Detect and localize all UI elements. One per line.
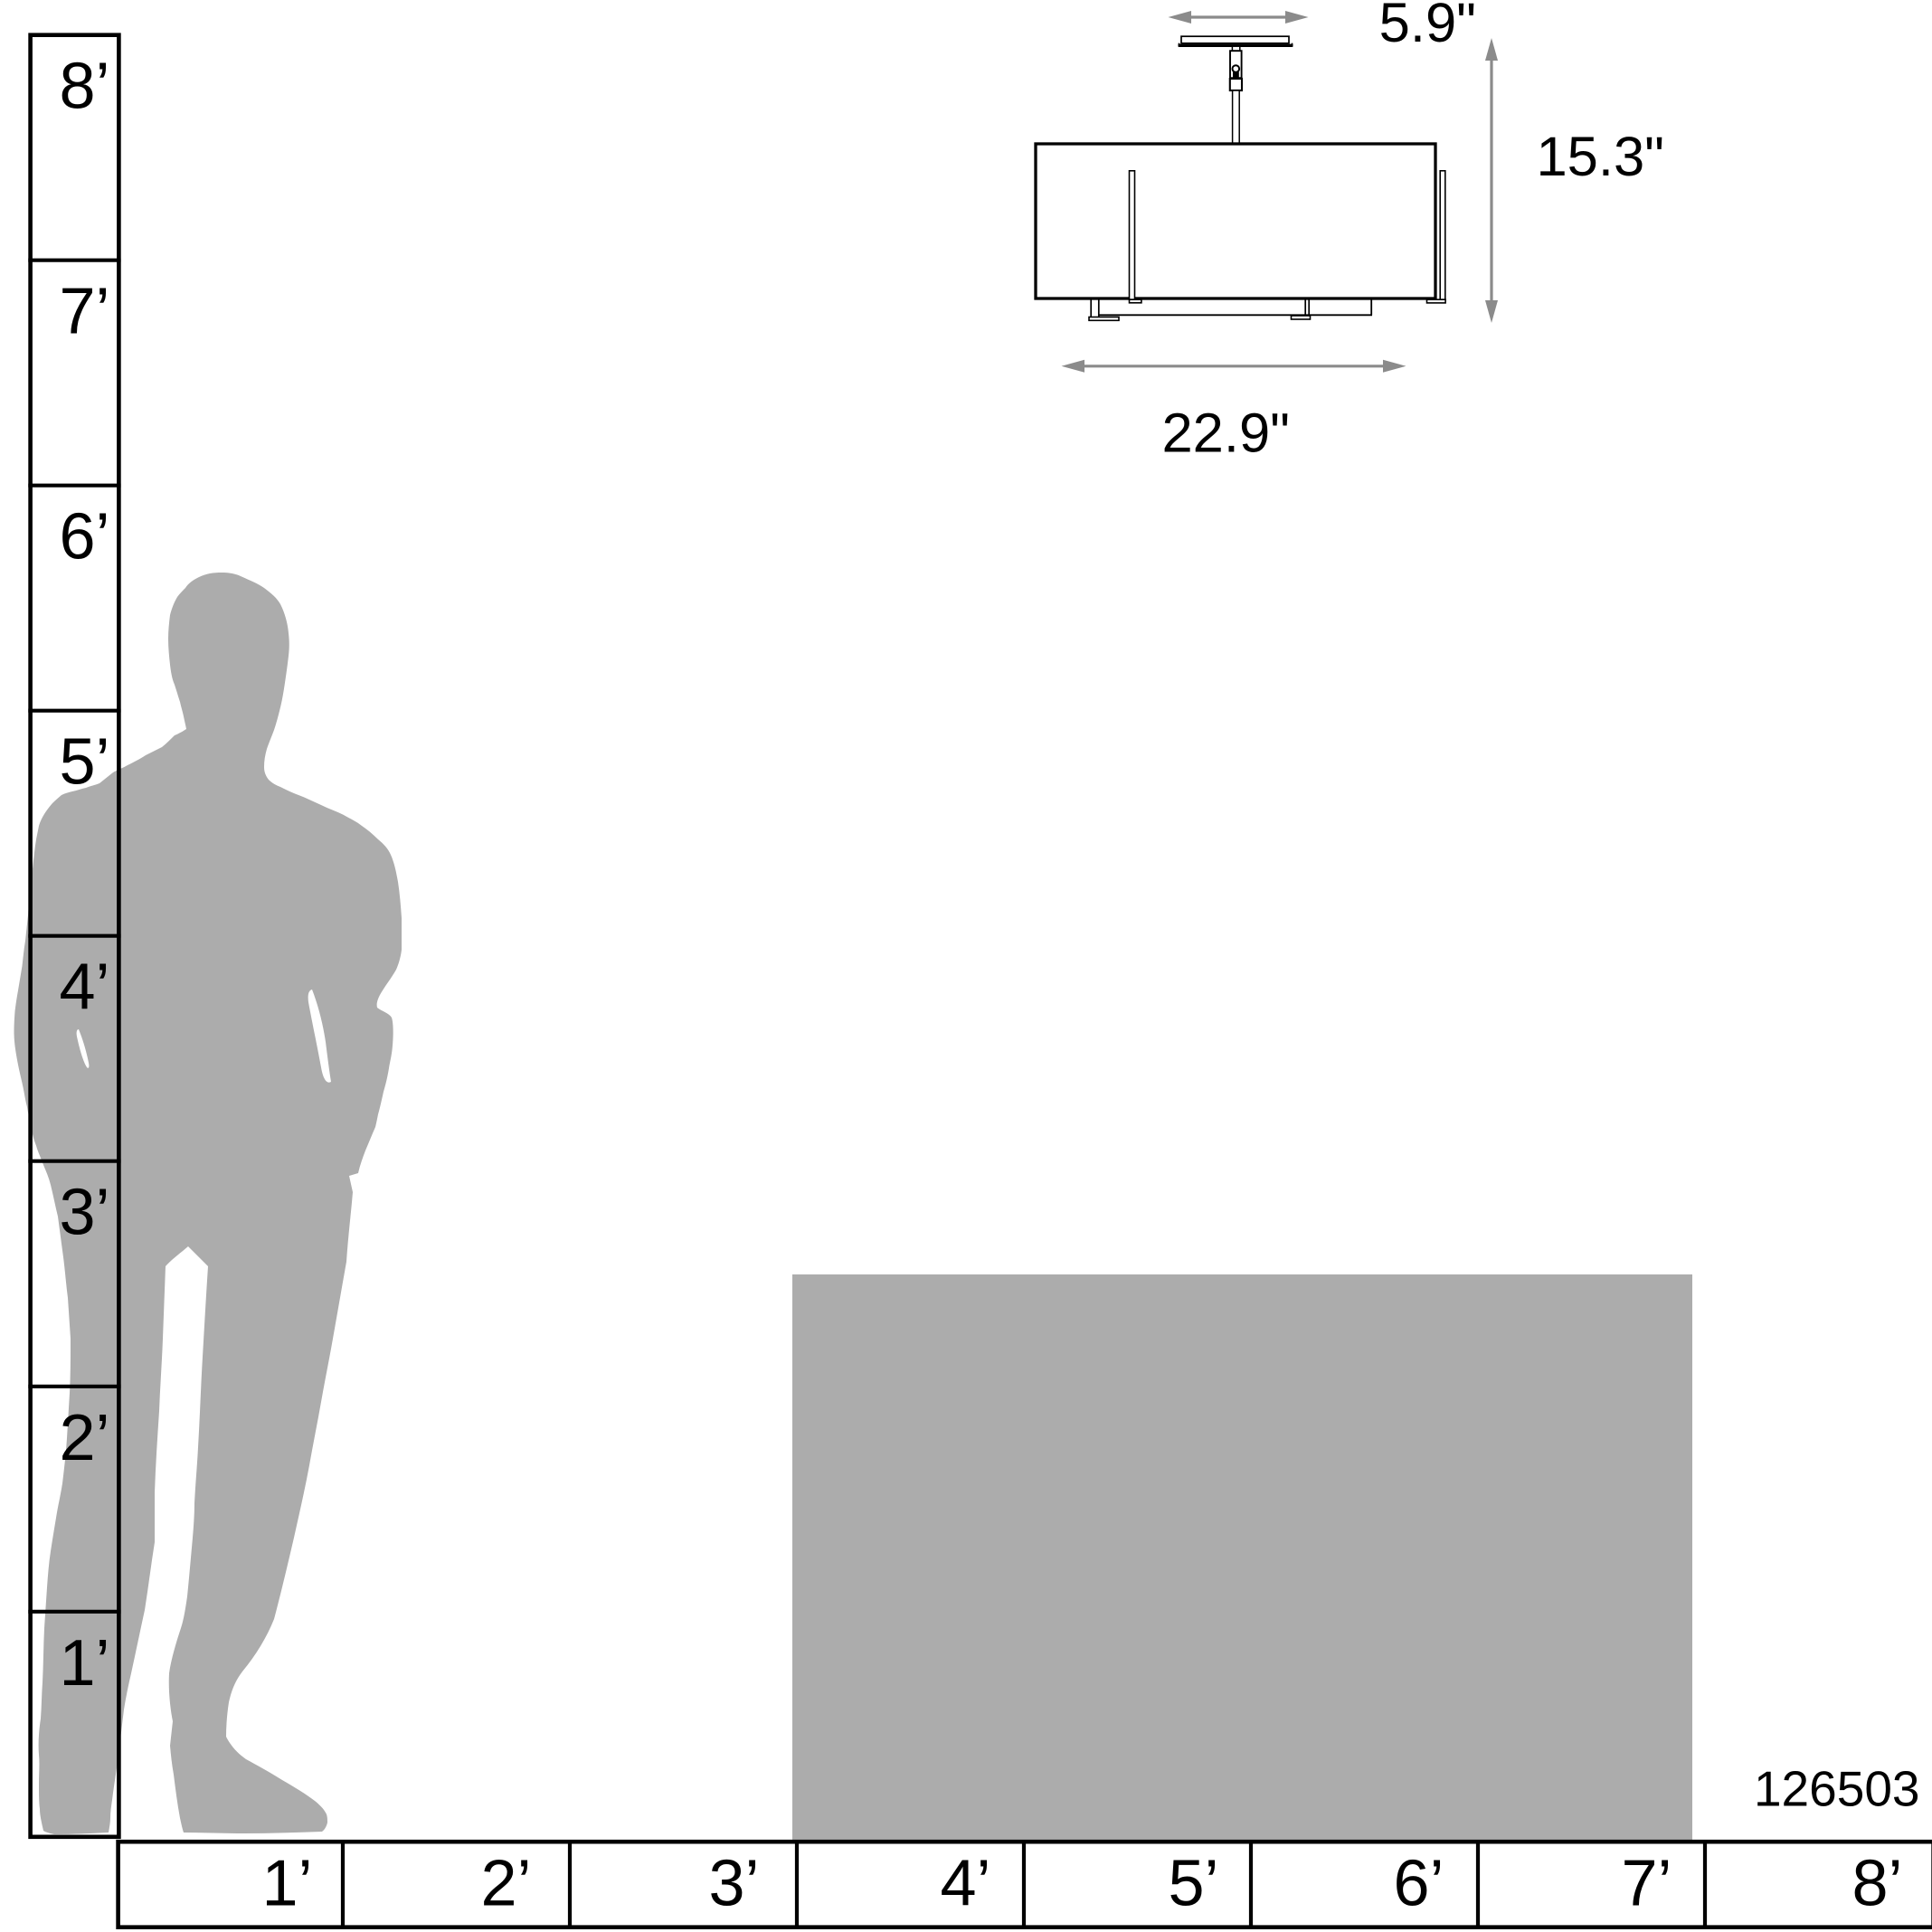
svg-text:2’: 2’ [59,1402,109,1474]
svg-text:8’: 8’ [59,51,109,123]
svg-text:126503: 126503 [1754,1761,1920,1817]
svg-text:7’: 7’ [1621,1848,1672,1920]
svg-text:15.3": 15.3" [1536,126,1664,188]
svg-text:22.9": 22.9" [1161,402,1290,465]
svg-text:1’: 1’ [261,1848,312,1920]
svg-text:5.9": 5.9" [1379,0,1476,54]
svg-text:2’: 2’ [480,1848,531,1920]
svg-text:6’: 6’ [59,501,109,573]
svg-text:1’: 1’ [59,1627,109,1700]
svg-text:7’: 7’ [59,276,109,348]
svg-text:5’: 5’ [1168,1848,1218,1920]
svg-text:3’: 3’ [708,1848,759,1920]
svg-text:4’: 4’ [59,952,109,1024]
svg-text:8’: 8’ [1851,1848,1902,1920]
svg-text:3’: 3’ [59,1177,109,1249]
svg-text:4’: 4’ [940,1848,990,1920]
svg-text:6’: 6’ [1393,1848,1444,1920]
svg-text:5’: 5’ [59,726,109,799]
